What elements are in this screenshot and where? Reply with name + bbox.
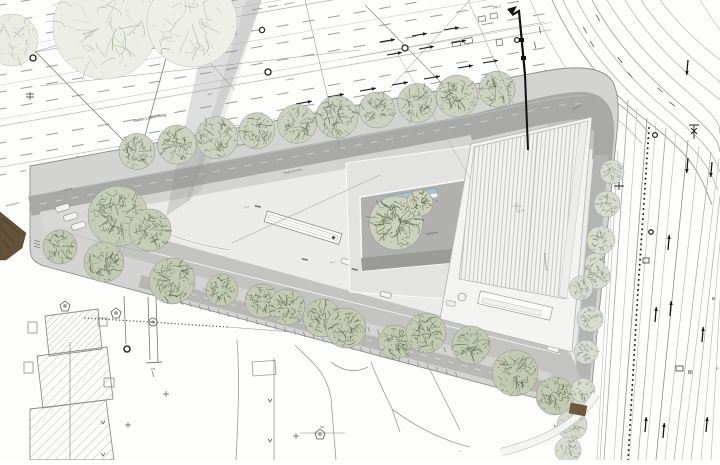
- svg-text:100: 100: [151, 367, 156, 371]
- svg-text:P: P: [716, 366, 719, 371]
- svg-text:B: B: [712, 296, 715, 301]
- svg-text:Bl: Bl: [688, 370, 692, 376]
- svg-text:392: 392: [320, 426, 325, 429]
